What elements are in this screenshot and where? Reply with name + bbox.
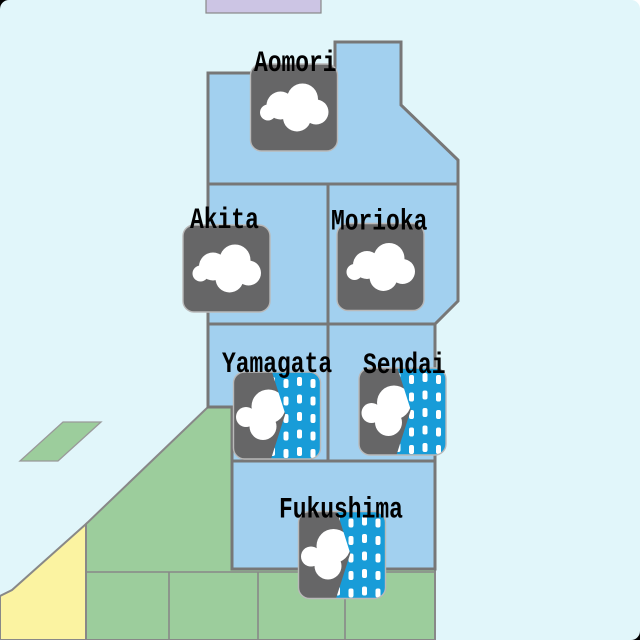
svg-text:Morioka: Morioka [331,206,427,240]
svg-text:Akita: Akita [190,204,259,238]
svg-text:Yamagata: Yamagata [222,348,332,382]
svg-text:Aomori: Aomori [254,47,337,81]
svg-text:Sendai: Sendai [363,349,446,383]
svg-text:Fukushima: Fukushima [279,494,403,528]
